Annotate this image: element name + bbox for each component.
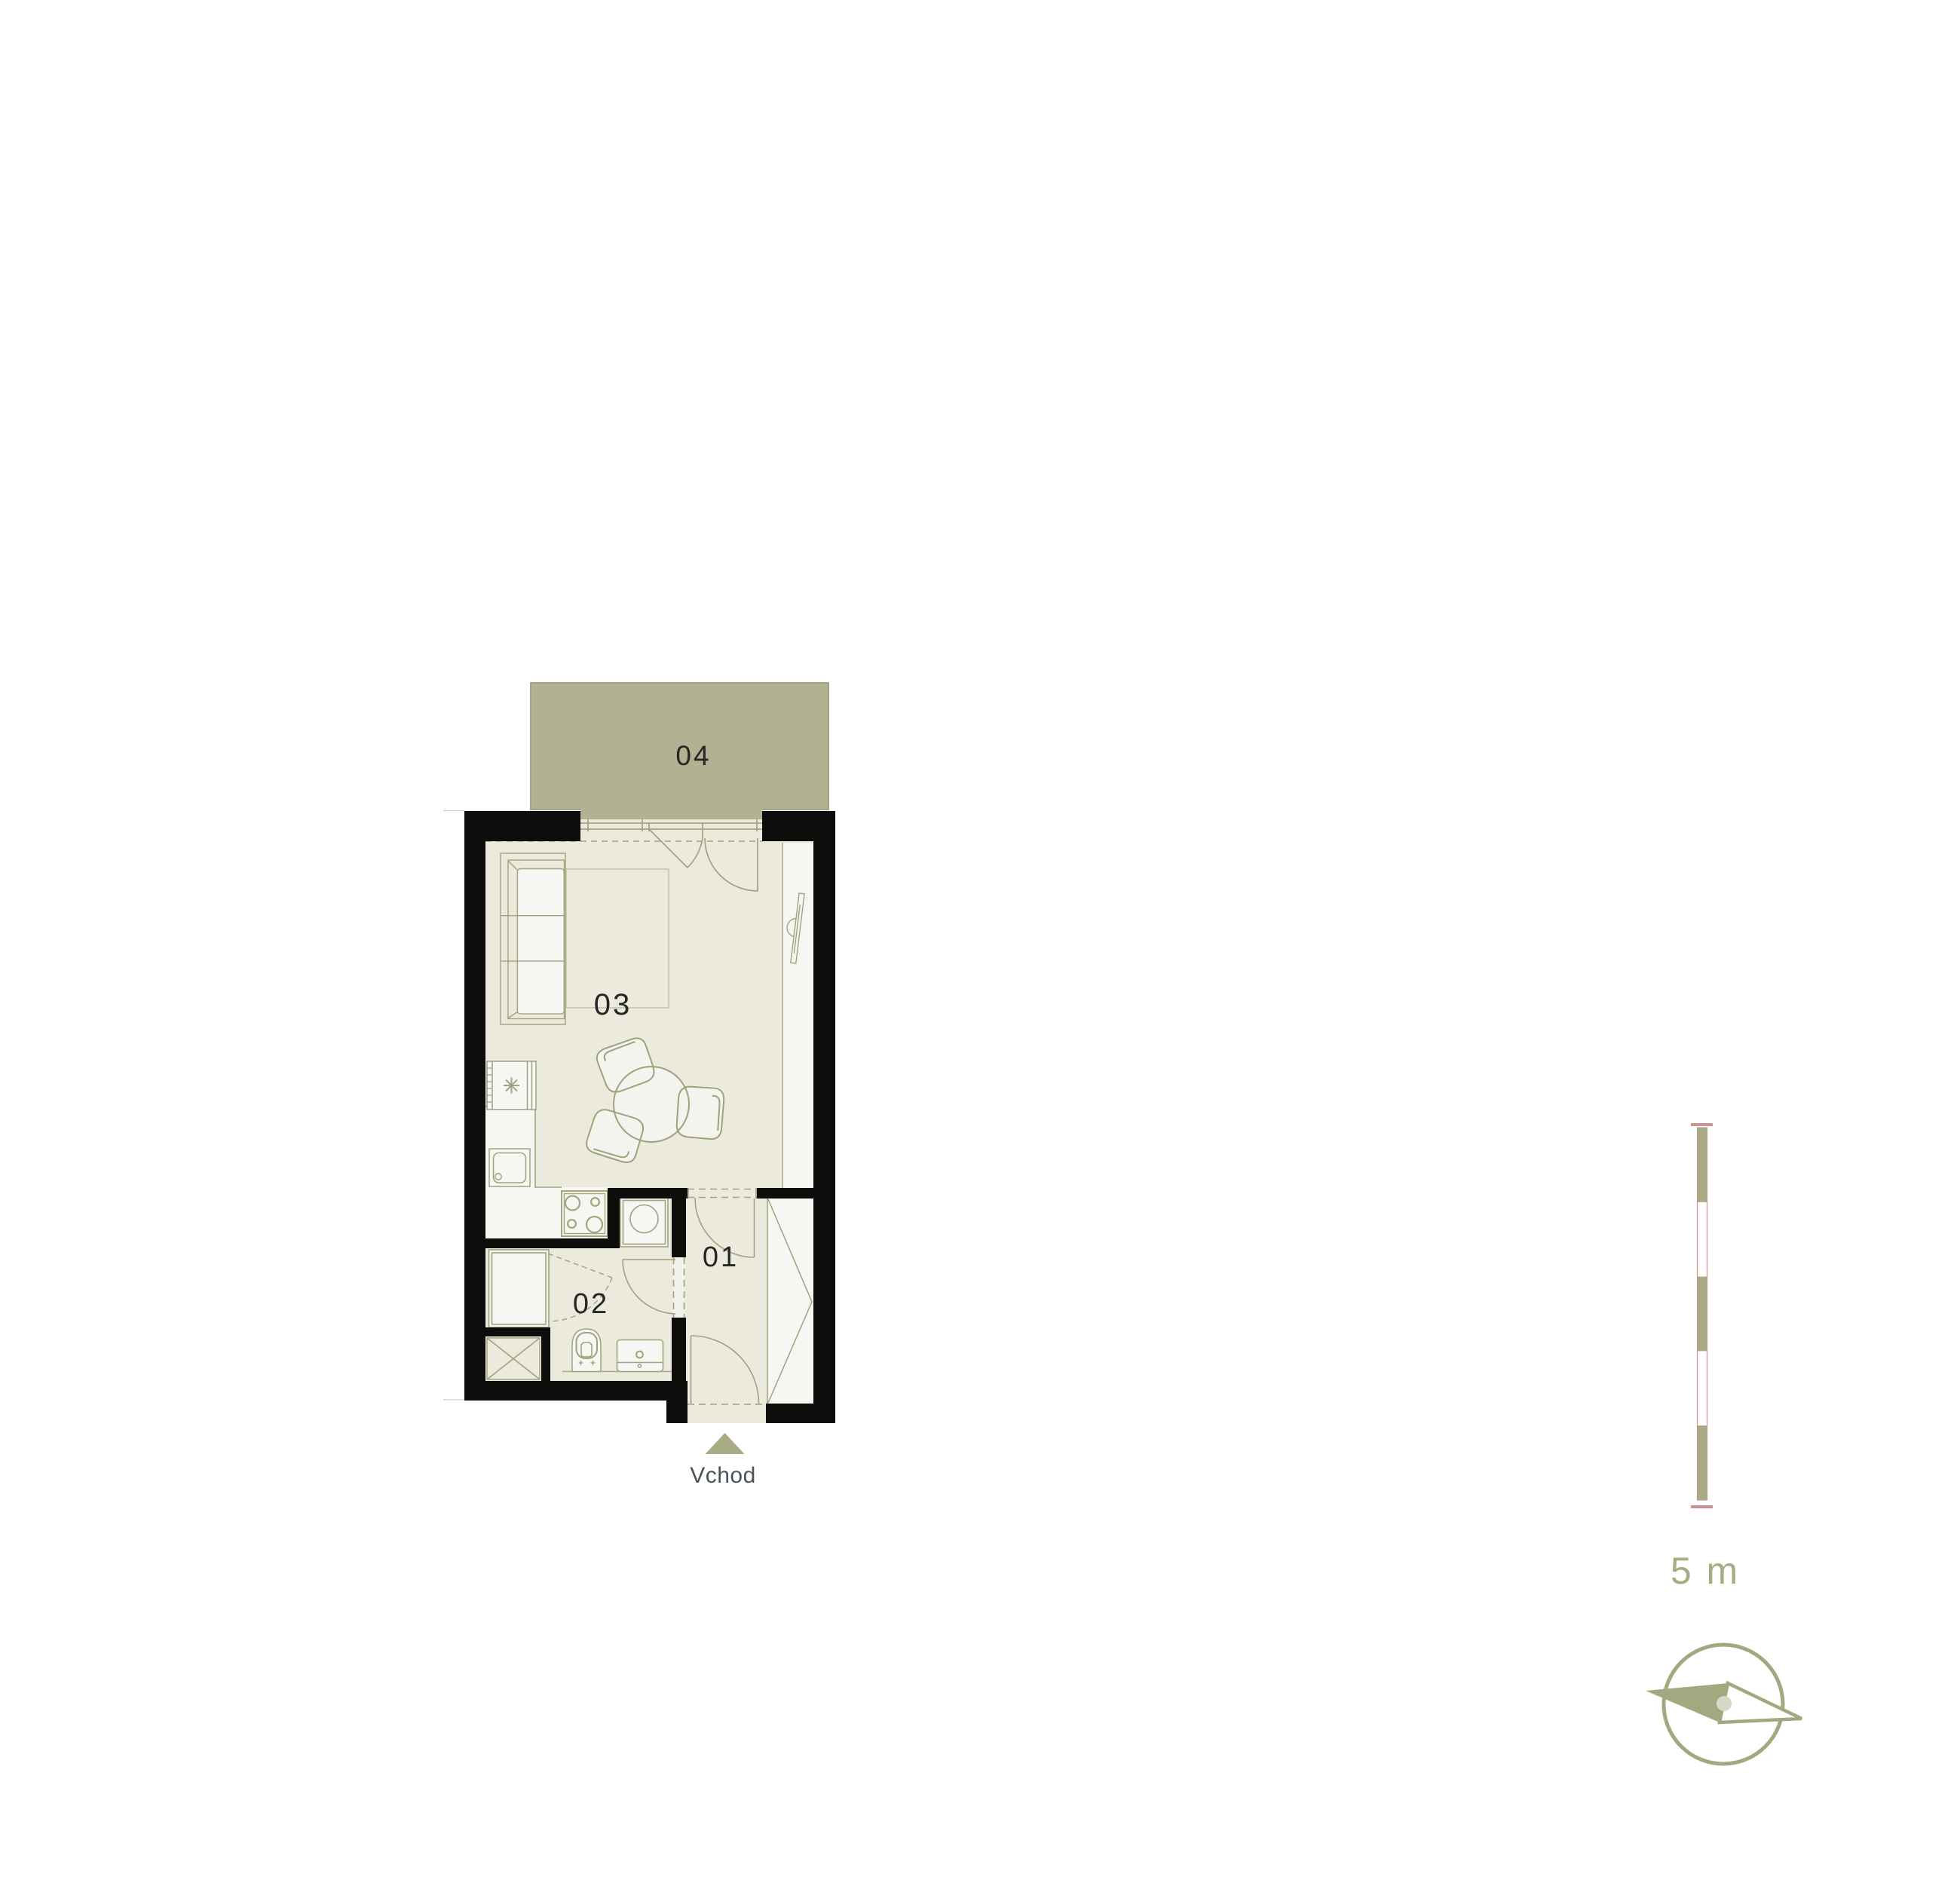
svg-text:01: 01: [703, 1241, 739, 1273]
svg-text:Vchod: Vchod: [690, 1463, 756, 1488]
svg-text:02: 02: [573, 1288, 609, 1320]
svg-text:04: 04: [675, 740, 711, 771]
svg-text:5 m: 5 m: [1671, 1550, 1740, 1592]
svg-text:03: 03: [594, 988, 632, 1021]
